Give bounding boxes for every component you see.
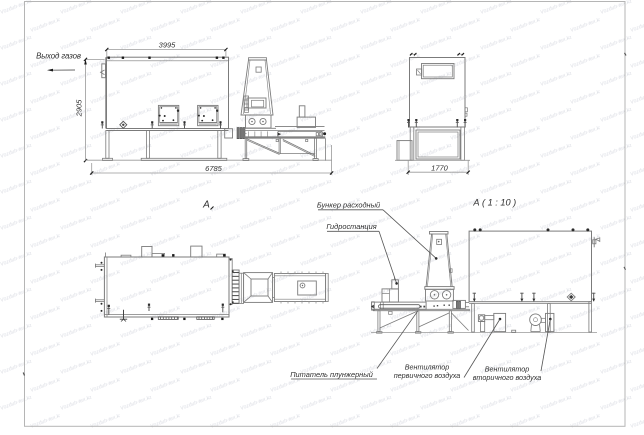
svg-text:А: А (202, 200, 210, 211)
svg-text:Бункер расходный: Бункер расходный (317, 201, 380, 210)
svg-text:Выход газов: Выход газов (36, 52, 81, 61)
svg-text:3995: 3995 (159, 41, 177, 50)
svg-text:1770: 1770 (431, 163, 449, 172)
svg-text:вторичного воздуха: вторичного воздуха (473, 373, 541, 382)
svg-text:6785: 6785 (205, 164, 223, 173)
svg-text:Гидростанция: Гидростанция (326, 222, 376, 231)
svg-text:А ( 1 : 10 ): А ( 1 : 10 ) (472, 197, 516, 207)
svg-text:2905: 2905 (75, 99, 84, 118)
svg-text:Питатель плунжерный: Питатель плунжерный (290, 370, 373, 379)
svg-text:первичного воздуха: первичного воздуха (394, 371, 461, 380)
